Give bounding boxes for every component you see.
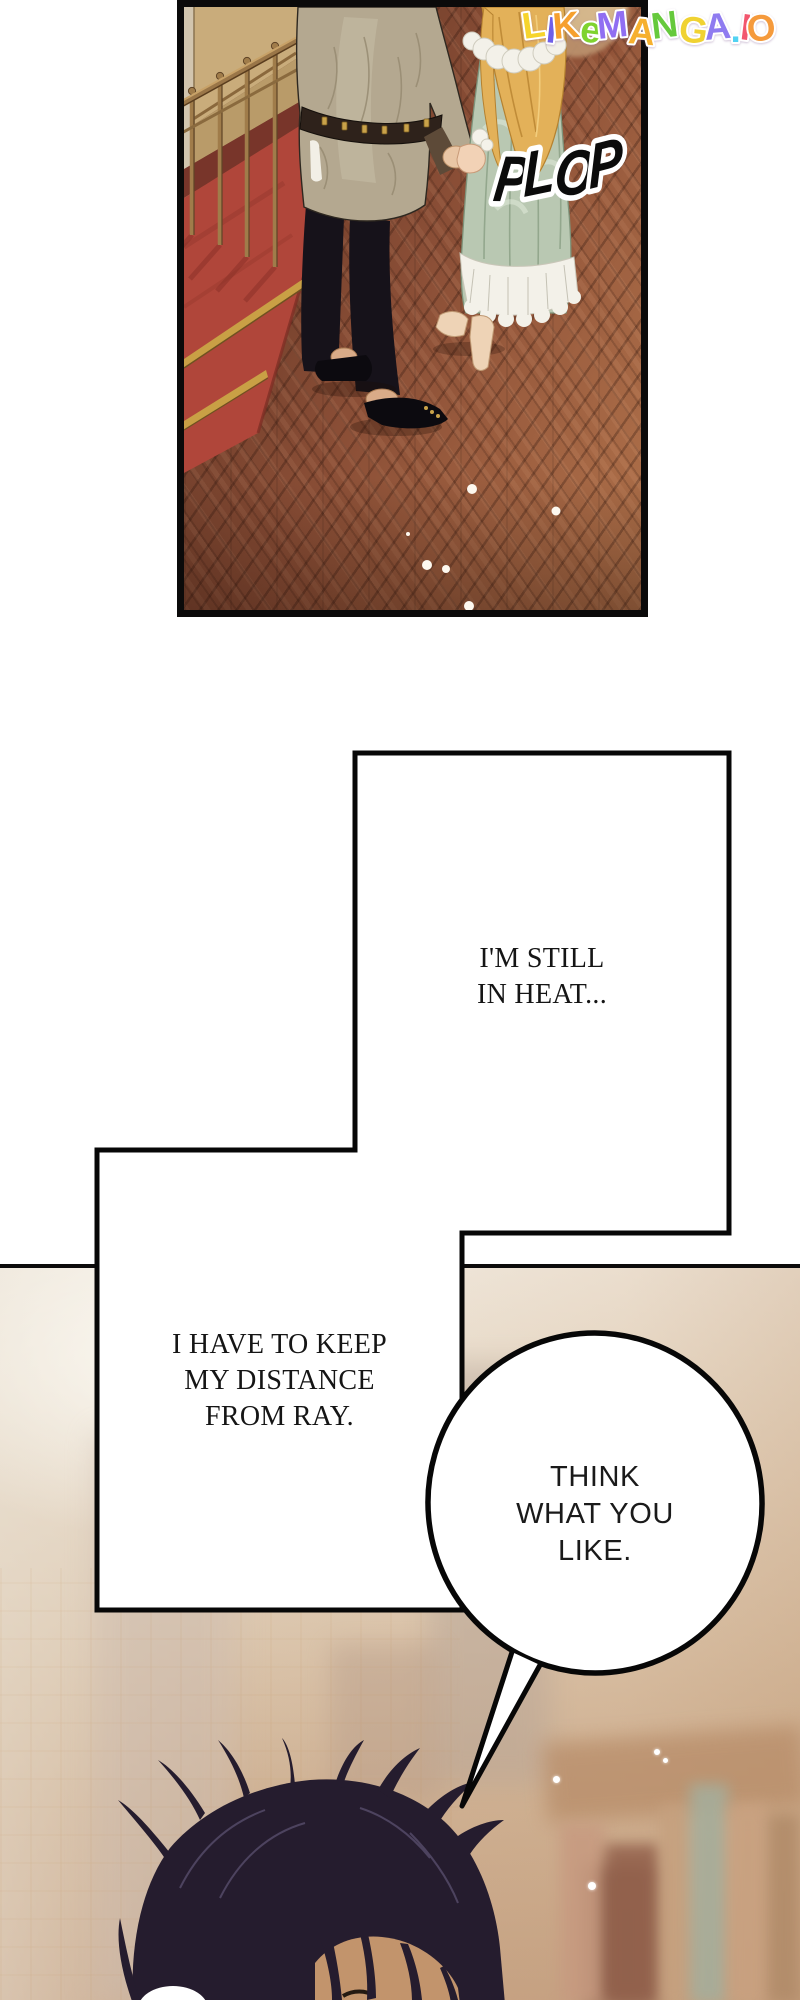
thought-line: I HAVE TO KEEP	[97, 1327, 462, 1363]
thought-text-distance: I HAVE TO KEEP MY DISTANCE FROM RAY.	[97, 1327, 462, 1435]
speech-line: LIKE.	[450, 1533, 740, 1570]
top-panel-art: PLOP	[184, 7, 641, 610]
messy-hair	[118, 1738, 505, 2000]
sparkle-dot	[588, 1882, 596, 1890]
sparkle-dot	[663, 1758, 668, 1763]
top-panel: PLOP	[177, 0, 648, 617]
thought-line: MY DISTANCE	[97, 1363, 462, 1399]
watermark-text: LIKeMANGA.IO	[520, 3, 777, 53]
speech-line: WHAT YOU	[450, 1496, 740, 1533]
sparkle-dot	[654, 1749, 660, 1755]
bg-bar-tan	[660, 1804, 690, 2000]
thought-line: IN HEAT...	[355, 977, 729, 1013]
character-head	[110, 1738, 520, 2000]
thought-line: I'M STILL	[355, 941, 729, 977]
site-watermark: LIKeMANGA.IO	[520, 1, 800, 57]
bg-bar-brown	[605, 1844, 660, 2000]
thought-line: FROM RAY.	[97, 1399, 462, 1435]
floor-speckles	[406, 484, 561, 610]
man-figure	[297, 7, 475, 436]
speech-line: THINK	[450, 1459, 740, 1496]
sparkle-dot	[553, 1776, 560, 1783]
bg-bar-tan2	[728, 1804, 768, 2000]
bg-bar-sage	[690, 1784, 728, 2000]
bg-bar-brown2	[768, 1814, 800, 2000]
bg-bar-pink	[560, 1824, 605, 2000]
manga-page: PLOP	[0, 0, 800, 2000]
speech-text: THINK WHAT YOU LIKE.	[450, 1459, 740, 1570]
thought-text-heat: I'M STILL IN HEAT...	[355, 941, 729, 1013]
